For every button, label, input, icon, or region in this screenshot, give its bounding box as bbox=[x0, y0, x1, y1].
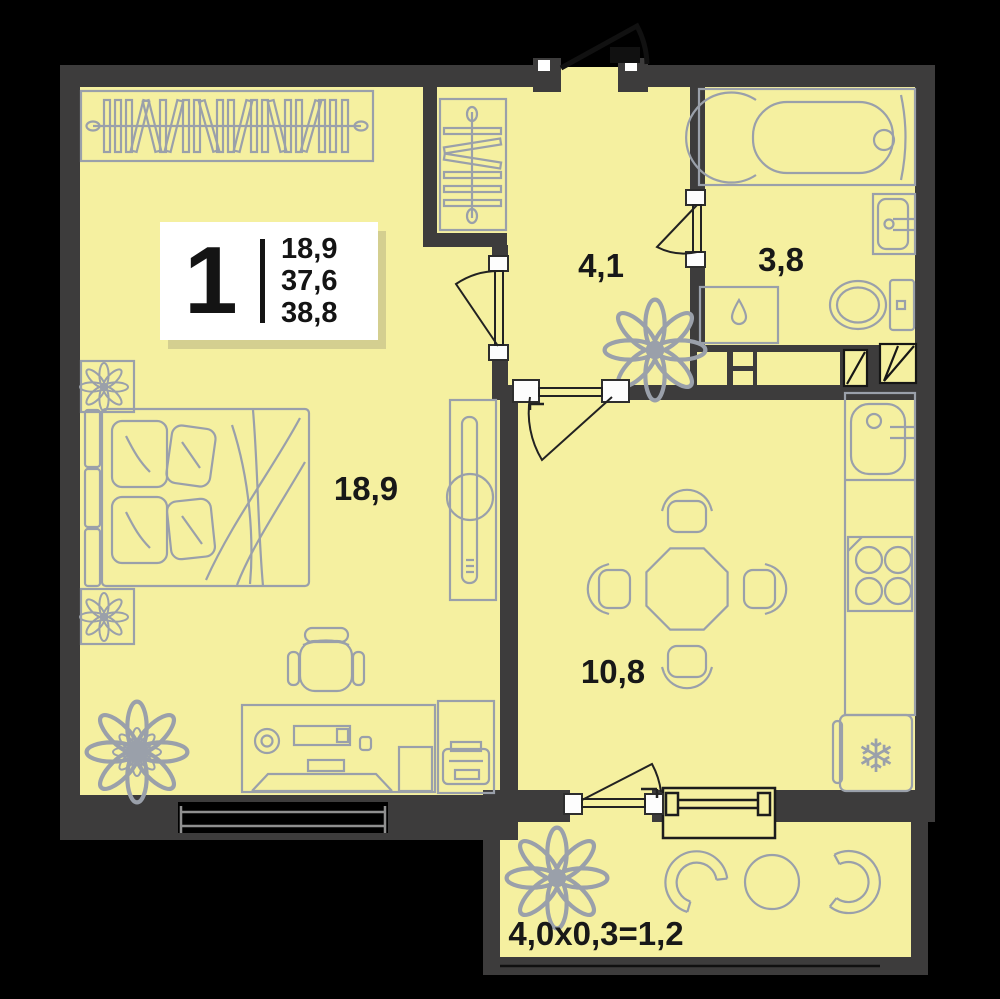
floor-plan: ❄ bbox=[0, 0, 1000, 999]
room-label-hallway: 4,1 bbox=[578, 247, 624, 285]
window-icon bbox=[178, 795, 388, 840]
legend-divider bbox=[260, 239, 265, 323]
legend-total-area: 38,8 bbox=[281, 297, 337, 329]
legend-card: 1 18,9 37,6 38,8 bbox=[160, 222, 378, 340]
room-label-living: 18,9 bbox=[334, 470, 398, 508]
floor-plan-drawing: ❄ bbox=[0, 0, 1000, 999]
legend-rooms-count: 1 bbox=[178, 233, 244, 329]
room-label-balcony: 4,0x0,3=1,2 bbox=[508, 915, 683, 953]
room-label-bathroom: 3,8 bbox=[758, 241, 804, 279]
entrance-threshold bbox=[561, 67, 620, 87]
room-label-kitchen: 10,8 bbox=[581, 653, 645, 691]
legend-areas: 18,9 37,6 38,8 bbox=[281, 233, 337, 329]
window-icon bbox=[663, 788, 775, 838]
legend-living-area: 18,9 bbox=[281, 233, 337, 265]
legend-area-no-balcony: 37,6 bbox=[281, 265, 337, 297]
snowflake-icon: ❄ bbox=[857, 729, 896, 783]
